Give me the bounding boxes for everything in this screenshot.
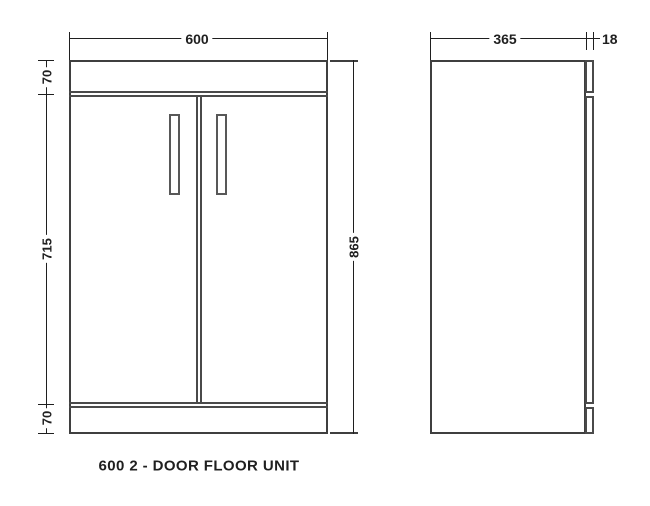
left-door-handle [169, 114, 180, 195]
side-door-strip-top [585, 60, 594, 93]
dim-left-tick-4 [38, 433, 54, 434]
dim-depth-tick-left [430, 32, 431, 60]
dim-left-tick-3 [38, 404, 54, 405]
dim-depth-tick-right [586, 32, 587, 50]
technical-drawing-floor-unit: 600 70 715 70 865 365 18 600 2 - DOOR FL… [0, 0, 650, 506]
front-plinth-band-line [69, 402, 328, 408]
dim-top-panel-label: 70 [41, 67, 54, 87]
dim-left-tick-1 [38, 60, 54, 61]
dim-door-height-label: 715 [41, 235, 54, 263]
door-split-line [196, 97, 202, 402]
dim-left-tick-2 [38, 94, 54, 95]
side-view-outline [430, 60, 586, 434]
right-door-handle [216, 114, 227, 195]
side-door-strip-bottom [585, 407, 594, 434]
dim-plinth-label: 70 [41, 408, 54, 428]
dim-depth-label: 365 [489, 32, 520, 46]
dim-width-label: 600 [181, 32, 212, 46]
dim-door-thickness-label: 18 [600, 32, 620, 46]
dim-width-tick-right [327, 32, 328, 60]
dim-total-height-label: 865 [348, 233, 361, 261]
side-door-strip-middle [585, 96, 594, 404]
dim-width-tick-left [69, 32, 70, 60]
dim-thickness-tick [593, 32, 594, 50]
drawing-caption: 600 2 - DOOR FLOOR UNIT [99, 458, 300, 475]
